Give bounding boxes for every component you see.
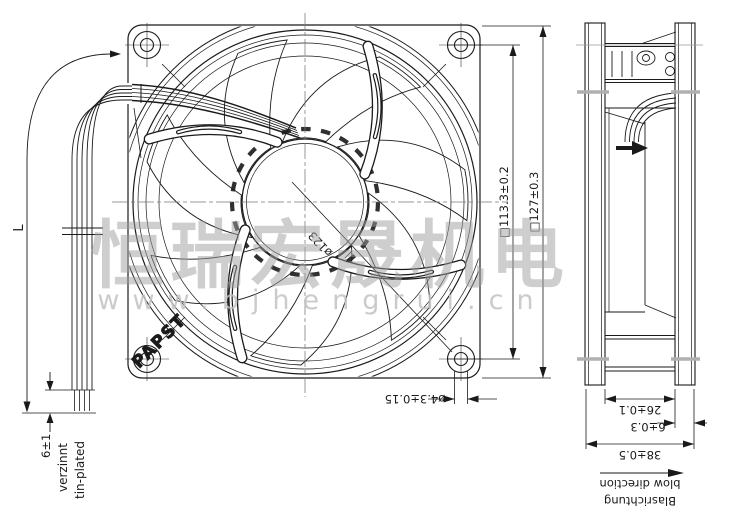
airflow-label-de: Blasrichtung bbox=[604, 494, 676, 508]
blow-direction-legend: blow direction Blasrichtung bbox=[600, 469, 685, 508]
side-view bbox=[576, 23, 703, 385]
dimension-frame-size: □127±0.3 bbox=[482, 26, 551, 378]
strip-length-label: 6±1 bbox=[39, 434, 53, 458]
overall-depth-label: 38±0.5 bbox=[619, 448, 662, 462]
dimension-inner-depth: 26±0.1 bbox=[605, 389, 675, 417]
dimension-hole-diameter: ø4.3±0.15 bbox=[385, 371, 497, 406]
drawing-page: L 6±1 verzinnt tin-plated ø123 □113.3±0.… bbox=[0, 0, 750, 516]
stripped-wire-tips bbox=[22, 390, 96, 413]
fan-technical-drawing: L 6±1 verzinnt tin-plated ø123 □113.3±0.… bbox=[0, 0, 750, 516]
strip-finish-de-label: verzinnt bbox=[56, 443, 70, 492]
blow-direction-arrow bbox=[616, 141, 648, 155]
left-flange bbox=[585, 23, 605, 385]
watermark: 恒瑞宏晟机电 www.bjhengrui.cn bbox=[90, 213, 570, 316]
strip-finish-en-label: tin-plated bbox=[73, 441, 87, 499]
hole-diameter-label: ø4.3±0.15 bbox=[385, 392, 446, 406]
side-view-wires bbox=[625, 93, 676, 142]
flange-depth-label: 6±0.3 bbox=[630, 420, 665, 434]
right-flange bbox=[675, 23, 695, 385]
watermark-website: www.bjhengrui.cn bbox=[97, 285, 546, 316]
inner-depth-label: 26±0.1 bbox=[619, 403, 662, 417]
lead-length-label: L bbox=[12, 224, 27, 232]
airflow-label-en: blow direction bbox=[600, 477, 681, 491]
motor-section bbox=[605, 32, 676, 83]
section-marks bbox=[577, 92, 700, 359]
